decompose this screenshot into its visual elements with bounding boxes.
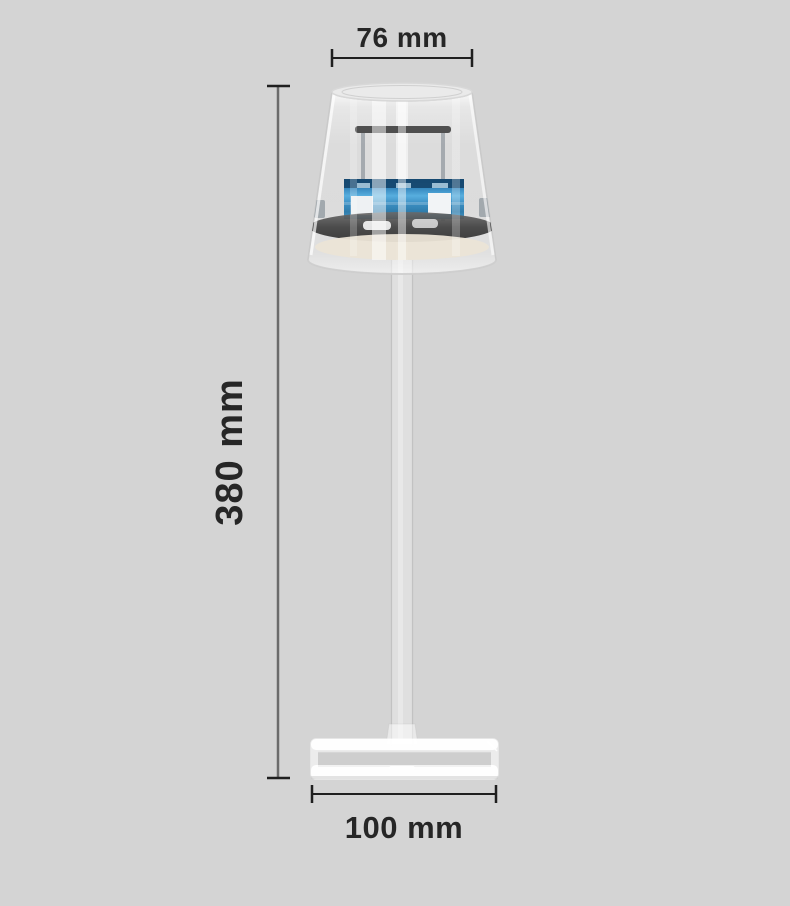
base-ground-shadow	[311, 776, 498, 779]
lamp-shade	[308, 83, 496, 274]
base-width-label: 100 mm	[345, 810, 463, 845]
base-see-through	[318, 752, 491, 766]
stem-foot	[389, 766, 415, 770]
glass-reflection	[372, 92, 386, 260]
base-top-face	[311, 739, 498, 750]
top-width-label: 76 mm	[356, 22, 447, 53]
height-label: 380 mm	[209, 378, 251, 526]
glass-reflection	[350, 96, 357, 256]
lamp-base	[311, 739, 498, 779]
glass-reflection	[398, 92, 406, 260]
led-panel-chip	[432, 183, 448, 188]
glass-reflection	[452, 96, 460, 256]
lamp-dimension-figure: 76 mm 380 mm 100 mm	[0, 0, 790, 906]
led-panel-component-right	[428, 193, 451, 214]
stem-highlight	[398, 260, 403, 746]
led-panel-chip	[357, 183, 370, 188]
plate-glint	[412, 219, 438, 228]
